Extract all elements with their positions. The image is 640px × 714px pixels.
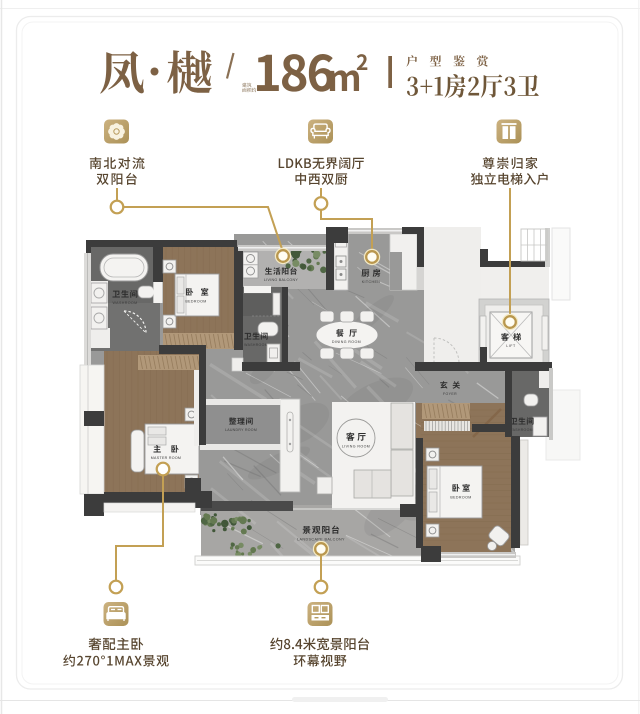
svg-text:FOYER: FOYER <box>443 392 457 396</box>
svg-text:DINING ROOM: DINING ROOM <box>332 340 361 344</box>
svg-text:BEDROOM: BEDROOM <box>450 496 471 500</box>
svg-text:WASHROOM: WASHROOM <box>509 428 533 432</box>
svg-text:LIFT: LIFT <box>506 344 516 348</box>
svg-text:KITCHEN: KITCHEN <box>362 280 381 284</box>
svg-text:MASTER ROOM: MASTER ROOM <box>151 456 181 460</box>
svg-text:WASHROOM: WASHROOM <box>244 343 268 347</box>
svg-text:LIVING ROOM: LIVING ROOM <box>342 445 370 449</box>
svg-text:LAUNDRY ROOM: LAUNDRY ROOM <box>225 428 257 432</box>
svg-text:WASHROOM: WASHROOM <box>112 301 137 305</box>
svg-text:LIVING BALCONY: LIVING BALCONY <box>264 278 298 282</box>
svg-text:BEDROOM: BEDROOM <box>185 300 206 304</box>
